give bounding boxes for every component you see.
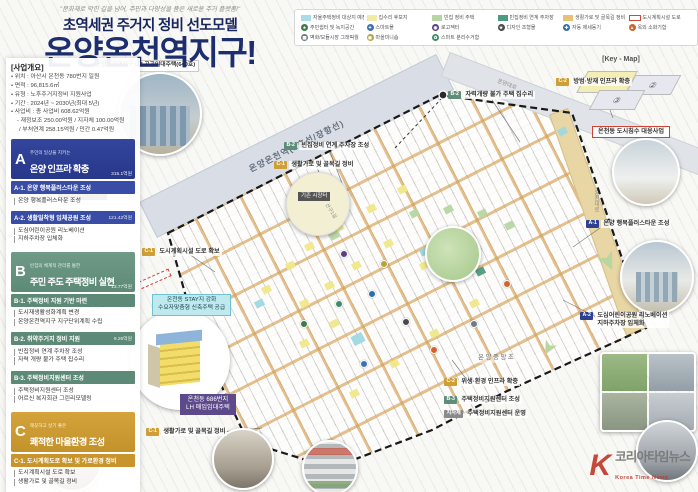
legend-item: ✚자동 제세동기 [563, 24, 626, 31]
legend-label: 자동 제세동기 [572, 24, 601, 31]
fire-extinguisher-icon [503, 280, 511, 288]
task-item: 자력 개량 불가 주택 집수리 [14, 357, 133, 364]
map-callout-safety-infra: C-2방범·방재 인프라 확충 [556, 78, 632, 86]
section-b-header: B 빈집의 체계적 관리를 통한 주민 주도 주택정비 실현 13.77억원 [11, 252, 135, 292]
overview-line: • 위치 : 아산시 온천동 780번지 일원 [11, 73, 135, 82]
callout-tag: A-1 [586, 220, 599, 228]
building-render-inset [612, 138, 680, 206]
smart-pole-icon [360, 360, 368, 368]
graphic-wall-icon [470, 320, 478, 328]
fire-extinguisher-icon: ▲ [629, 24, 636, 31]
green-space-icon: ♣ [301, 24, 308, 31]
subsection-a1-header: A-1. 온양 행복플러스타운 조성 [11, 181, 135, 194]
task-item: 도시재생활성화계획 변경 [14, 310, 133, 317]
legend-item: 도시계획시설 도로 [629, 14, 692, 21]
task-item: 온양온천역지구 지구단위계획 수립 [14, 319, 133, 326]
collage-photo [602, 354, 647, 391]
legend-label: 빈집정비 연계 주차장 [510, 14, 554, 21]
callout-text: 빈집정비 연계 주차장 조성 [299, 142, 371, 150]
smart-pole-icon: ✦ [367, 24, 374, 31]
subsection-title: B-3. 주택정비지원센터 조성 [14, 373, 84, 382]
aed-icon [368, 290, 376, 298]
callout-text: 주택정비지원센터 조성 [459, 396, 522, 404]
legend-label: 생활가로 및 골목길 정비 [575, 14, 625, 21]
stay-line1: 온천동 STAY지 강화 [158, 297, 225, 305]
legend-label: 도시계획시설 도로 [643, 14, 681, 21]
park-photo-inset [425, 226, 481, 282]
callout-text: 도심어린이공원 리노베이션지하주차장 입체화 [595, 312, 669, 328]
subsection-items: 도심어린이공원 리노베이션 지하주차장 입체화 [11, 224, 135, 248]
legend-item: ♣주민쉼터 및 녹지공간 [301, 24, 364, 31]
map-callout-plus-town: A-1온양 행복플러스타운 조성 [586, 220, 671, 228]
building-render-inset [620, 240, 694, 314]
section-title: 주민 주도 주택정비 실현 [30, 277, 114, 287]
legend-label: 자율주택정비 대상지 예정 주택 [313, 14, 364, 21]
legend-item: 생활가로 및 골목길 정비 [563, 14, 626, 21]
map-callout-parking: B-2빈집정비 연계 주차장 조성 [284, 142, 371, 150]
map-callout-alley: C-1생활가로 및 골목길 정비 [274, 161, 355, 169]
overview-line: • 사업비 : 총 사업비 608.62억원 [11, 108, 135, 117]
section-budget: 13.77억원 [111, 283, 132, 290]
section-eyebrow: 깨끗하고 살기 좋은 [30, 423, 66, 428]
legend-swatch [498, 15, 508, 21]
key-map-title: [Key - Map] [556, 56, 686, 63]
market-site-inset [286, 172, 350, 236]
legend-swatch [301, 15, 311, 21]
map-callout-alley-bottom: C-1생활가로 및 골목길 정비 [146, 428, 227, 436]
subsection-title: B-1. 주택정비 지원 기반 마련 [14, 296, 87, 305]
section-budget: 315.1억원 [111, 170, 132, 177]
callout-text-line1: 도심어린이공원 리노베이션 [597, 312, 667, 319]
callout-tag: C-1 [146, 428, 159, 436]
logo-korean-name: 코리아타임뉴스 [615, 450, 690, 464]
housing-3d-side [148, 344, 160, 388]
callout-tag: C-1 [274, 161, 287, 169]
subsection-title: A-1. 온양 행복플러스타운 조성 [14, 183, 91, 192]
logojector-icon: ◉ [432, 24, 439, 31]
task-item: 생활가로 및 골목길 정비 [14, 479, 133, 486]
legend-swatch [629, 15, 641, 21]
header-subtitle: 초역세권 주거지 정비 선도모델 [4, 14, 296, 35]
callout-tag: 지자체 [444, 410, 463, 418]
subsection-b3-header: B-3. 주택정비지원센터 조성 [11, 371, 135, 384]
school-label: 온양중앙초 [476, 354, 517, 363]
market-site-label: 기존 시장터 [298, 192, 330, 201]
overview-line: • 유형 : 노후주거지정비 지원사업 [11, 91, 135, 100]
section-letter: A [15, 151, 26, 168]
callout-text: 자력개량 불가 주택 집수리 [463, 91, 535, 99]
legend-item: 빈집정비 연계 주차장 [498, 14, 561, 21]
subsection-budget: 121.42억원 [109, 214, 133, 221]
section-c-header: C 깨끗하고 살기 좋은 쾌적한 마을환경 조성 [11, 412, 135, 452]
map-legend: 자율주택정비 대상지 예정 주택 집수리 후보지 빈집 정비 주택 빈집정비 연… [294, 9, 698, 46]
housing-3d-building [160, 340, 200, 386]
aed-icon: ✚ [563, 24, 570, 31]
callout-text-line2: 지하주차장 입체화 [597, 320, 644, 327]
task-item: 어르신 복지회관 그린리모델링 [14, 396, 133, 403]
callout-tag: B-3 [444, 396, 457, 404]
task-item: 주택정비지원센터 조성 [14, 388, 133, 395]
subsection-title: B-2. 취약주거지 정비 지원 [14, 334, 80, 343]
crosswalk-photo-inset [302, 440, 358, 492]
section-letter: B [15, 263, 26, 280]
legend-item: ▲옥외 소화기함 [629, 24, 692, 31]
callout-tag: C-2 [444, 378, 457, 386]
stay-district-label: 온천동 STAY지 강화 수요자맞춤형 신축주택 공급 [152, 294, 231, 316]
callout-tag: B-2 [448, 91, 461, 99]
subsection-budget: 9.26억원 [114, 335, 132, 342]
mini-shop-icon: ◼ [367, 34, 374, 41]
news-watermark: K 코리아타임뉴스 Korea Time News [589, 448, 690, 484]
map-callout-sanitation-infra: C-2위생·환경 인프라 확충 [444, 378, 520, 386]
graphic-wall-icon: ▦ [301, 34, 308, 41]
key-map-shapes: ① ② ③ [556, 63, 686, 111]
legend-swatch [432, 15, 442, 21]
subsection-items: 도시재생활성화계획 변경 온양온천역지구 지구단위계획 수립 [11, 307, 135, 331]
collage-photo [602, 393, 647, 430]
legend-label: 디자인 조형물 [507, 24, 536, 31]
subsection-b2-header: B-2. 취약주거지 정비 지원9.26억원 [11, 332, 135, 345]
legend-item: 집수리 후보지 [367, 14, 430, 21]
callout-text: 도시계획시설 도로 확보 [157, 248, 221, 256]
render-towers [636, 272, 678, 302]
subsection-items: 도시계획시설 도로 확보 생활가로 및 골목길 정비 [11, 467, 135, 491]
logo-k-icon: K [589, 454, 611, 478]
legend-label: 스마트폴 [376, 24, 394, 31]
map-callout-center-operation: 지자체주택정비지원센터 운영 [444, 410, 528, 418]
subsection-a2-header: A-2. 생활밀착형 입체공원 조성121.42억원 [11, 211, 135, 224]
design-sculpture-icon: ★ [498, 24, 505, 31]
callout-text: 생활가로 및 골목길 정비 [289, 161, 355, 169]
zone-number: ③ [611, 96, 623, 105]
legend-item: ◉로고젝터 [432, 24, 495, 31]
logo-english-name: Korea Time News [615, 475, 668, 481]
callout-text: 주택정비지원센터 운영 [465, 410, 528, 418]
callout-text: 위생·환경 인프라 확충 [459, 378, 520, 386]
section-letter: C [15, 423, 26, 440]
task-item: 도심어린이공원 리노베이션 [14, 228, 133, 235]
lh-housing-label: 온천동 686번지 LH 매입임대주택 [180, 394, 236, 415]
callout-text: 생활가로 및 골목길 정비 [161, 428, 227, 436]
section-eyebrow: 주민의 일상을 지키는 [30, 150, 71, 155]
legend-label: 벽화/모듈시장 그래픽월 [310, 34, 359, 41]
task-item: 도시계획시설 도로 확보 [14, 470, 133, 477]
project-sidebar: [사업개요] • 위치 : 아산시 온천동 780번지 일원 • 면적 : 96… [6, 58, 140, 492]
subsection-items: 빈집정비 연계 주차장 조성 자력 개량 불가 주택 집수리 [11, 345, 135, 369]
collage-photo [649, 354, 694, 391]
task-item: 지하주차장 입체화 [14, 236, 133, 243]
map-callout-house-repair: B-2자력개량 불가 주택 집수리 [448, 91, 535, 99]
subsection-title: A-2. 생활밀착형 입체공원 조성 [14, 213, 91, 222]
overview-line: - 재정보조 250.00억원 / 지자체 100.00억원 [11, 117, 135, 126]
legend-item: 빈집 정비 주택 [432, 14, 495, 21]
legend-item: ✦스마트폴 [367, 24, 430, 31]
smart-bin-icon: ♻ [432, 34, 439, 41]
photo-collage [600, 352, 696, 432]
overview-line: / 부처연계 258.15억원 / 민간 0.47억원 [11, 126, 135, 135]
map-callout-support-center: B-3주택정비지원센터 조성 [444, 396, 522, 404]
callout-tag: C-1 [142, 248, 155, 256]
legend-item: ★디자인 조형물 [498, 24, 561, 31]
callout-tag: C-2 [556, 78, 569, 86]
subsection-c1-header: C-1. 도시계획도로 확보 및 가로환경 정비 [11, 454, 135, 467]
design-sculpture-icon [402, 318, 410, 326]
overview-title: [사업개요] [11, 62, 135, 73]
subsection-title: C-1. 도시계획도로 확보 및 가로환경 정비 [14, 456, 116, 465]
task-item: 온양 행복플러스타운 조성 [14, 198, 133, 205]
legend-swatch [563, 15, 573, 21]
callout-tag: A-2 [580, 312, 593, 320]
logojector-icon [340, 250, 348, 258]
crosswalk-green-band [304, 481, 356, 488]
mini-shop-icon [380, 260, 388, 268]
callout-text: 방범·방재 인프라 확충 [571, 78, 632, 86]
legend-label: 빈집 정비 주택 [444, 14, 474, 21]
key-map-zone-3: ③ [589, 90, 646, 110]
legend-label: 옥외 소화기함 [638, 24, 667, 31]
poster-canvas: 온양온천역(1호선/장항선) 온양대로 온천대로 [0, 0, 698, 492]
legend-item: ◼마을미니숍 [367, 34, 430, 41]
flood-response-label: 온천동 도시침수 대응사업 [592, 126, 670, 138]
subsection-items: 온양 행복플러스타운 조성 [11, 194, 135, 209]
alley-photo-inset [212, 428, 274, 490]
legend-label: 집수리 후보지 [379, 14, 408, 21]
task-item: 빈집정비 연계 주차장 조성 [14, 349, 133, 356]
subsection-items: 주택정비지원센터 조성 어르신 복지회관 그린리모델링 [11, 384, 135, 408]
legend-item: ♻스마트 분리수거함 [432, 34, 495, 41]
legend-label: 스마트 분리수거함 [441, 34, 479, 41]
section-a-header: A 주민의 일상을 지키는 온양 인프라 확충 315.1억원 [11, 139, 135, 179]
header-quote: "문화재로 막힌 길을 넘어, 주민과 다양성을 품은 새로운 주거 플랫폼!" [4, 4, 296, 13]
legend-label: 마을미니숍 [376, 34, 399, 41]
fire-extinguisher-icon [430, 346, 438, 354]
callout-tag: B-2 [284, 142, 297, 150]
smart-bin-icon [335, 300, 343, 308]
subsection-b1-header: B-1. 주택정비 지원 기반 마련 [11, 294, 135, 307]
map-callout-park-renovation: A-2도심어린이공원 리노베이션지하주차장 입체화 [580, 312, 669, 328]
callout-text: 온양 행복플러스타운 조성 [601, 220, 671, 228]
stay-line2: 수요자맞춤형 신축주택 공급 [158, 305, 225, 313]
oncheon-daero-label: 온천대로 [592, 190, 600, 212]
legend-label: 주민쉼터 및 녹지공간 [310, 24, 354, 31]
overview-line: • 면적 : 96,815.6㎡ [11, 82, 135, 91]
legend-item: 자율주택정비 대상지 예정 주택 [301, 14, 364, 21]
section-title: 쾌적한 마을환경 조성 [30, 437, 105, 447]
lh-line2: LH 매입임대주택 [186, 404, 230, 412]
crosswalk-red-band [304, 448, 356, 455]
legend-swatch [367, 15, 377, 21]
overview-line: • 기간 : 2024년 ~ 2030년(최대 5년) [11, 100, 135, 109]
section-eyebrow: 빈집의 체계적 관리를 통한 [30, 263, 80, 268]
green-space-icon [300, 320, 308, 328]
zone-number: ② [647, 81, 659, 90]
legend-label: 로고젝터 [441, 24, 459, 31]
map-callout-planned-road: C-1도시계획시설 도로 확보 [142, 248, 222, 256]
section-title: 온양 인프라 확충 [30, 164, 89, 174]
legend-item: ▦벽화/모듈시장 그래픽월 [301, 34, 364, 41]
